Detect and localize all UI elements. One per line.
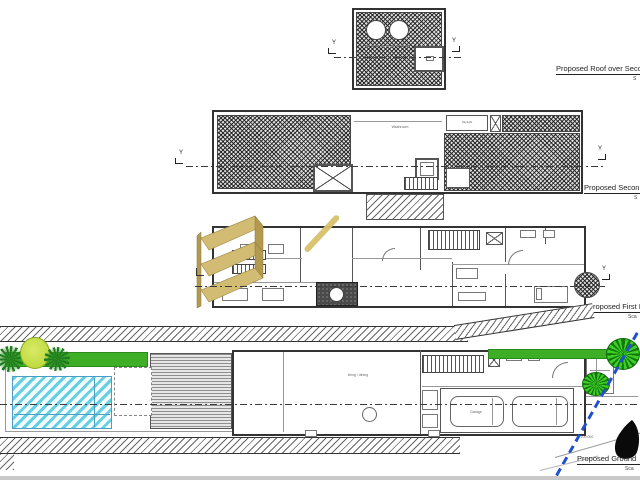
- ground-floor-plan: living / dining Garage: [0, 320, 640, 480]
- first-section-line: [195, 286, 605, 287]
- palm-plant: [44, 347, 70, 371]
- skylight-label: Skylight: [450, 121, 484, 124]
- proposed-extension-dashed: [114, 367, 152, 416]
- section-marker-label: Y: [598, 266, 610, 272]
- wall-segment: [422, 386, 586, 387]
- plan-sheet: Y Y Proposed Roof over Seco S Skylight W…: [0, 0, 640, 480]
- wall-segment: [283, 352, 284, 432]
- party-wall-top: [0, 326, 468, 342]
- second-section-marker-right: Y: [594, 146, 606, 160]
- first-section-marker-right: Y: [598, 266, 610, 280]
- main-room-label: living / dining: [330, 374, 386, 378]
- roof-plan-title: Proposed Roof over Seco: [556, 64, 640, 75]
- second-stair: [404, 177, 438, 190]
- second-section-line: [186, 166, 606, 167]
- pool-lane-line: [14, 414, 110, 415]
- pool-step-line: [94, 378, 95, 427]
- wall-segment: [354, 121, 442, 122]
- timber-deck: [150, 353, 232, 429]
- section-marker-bracket: [452, 46, 460, 52]
- column-base: [428, 430, 440, 437]
- section-marker-bracket: [328, 48, 336, 54]
- column-base: [305, 430, 317, 437]
- table-circle: [362, 407, 377, 422]
- car-windshield: [556, 398, 557, 425]
- first-plan-title: Proposed First F: [588, 302, 640, 313]
- roof-scale-label: S: [633, 76, 636, 82]
- wall-segment: [420, 350, 421, 434]
- party-wall-corner-patch: [0, 454, 14, 470]
- store-room: [422, 390, 438, 410]
- section-marker-label: Y: [175, 150, 187, 156]
- second-roof-hatch-top-strip: [502, 115, 580, 132]
- entrance-step: [590, 370, 610, 371]
- section-marker-label: Y: [594, 146, 606, 152]
- second-stair-bulkhead: [366, 194, 444, 220]
- section-marker-bracket: [598, 154, 606, 160]
- first-stair: [428, 230, 480, 250]
- level-dim-label: 100.000: [575, 436, 599, 440]
- car: [512, 396, 568, 427]
- second-landing-box: [446, 168, 470, 188]
- garage-label: Garage: [460, 411, 492, 415]
- furniture: [458, 292, 486, 301]
- roof-plan: Y Y Proposed Roof over Seco S: [0, 0, 640, 100]
- first-fixture: [520, 230, 536, 238]
- store-room: [422, 414, 438, 428]
- first-fixture: [543, 230, 555, 238]
- gold-louvre-overlay: [193, 208, 289, 312]
- second-vent-xbox: [490, 115, 501, 132]
- section-marker-label: Y: [448, 38, 460, 44]
- first-vent-xbox: [486, 232, 503, 245]
- first-bay-circle: [574, 272, 600, 298]
- roof-note-smudge: [366, 45, 410, 47]
- roof-section-marker-right: Y: [448, 38, 460, 52]
- ground-stair: [422, 355, 484, 373]
- party-wall-bottom: [0, 437, 460, 454]
- wall-segment: [300, 228, 301, 282]
- driveway-edge: [586, 396, 638, 397]
- roof-tank-right: [389, 20, 409, 40]
- ground-section-line: [0, 404, 640, 405]
- first-spa-tub: [329, 287, 344, 302]
- section-marker-label: Y: [328, 40, 340, 46]
- section-marker-bracket: [602, 274, 610, 280]
- second-lift-inner: [420, 162, 434, 176]
- ground-plan-title: Proposed Ground: [577, 454, 640, 465]
- wall-segment: [420, 228, 421, 270]
- roof-tank-left: [366, 20, 386, 40]
- roof-section-marker-left: Y: [328, 40, 340, 54]
- section-marker-bracket: [175, 158, 183, 164]
- first-section-bracket-left: [196, 268, 204, 276]
- sheet-bottom-edge: [0, 476, 640, 480]
- swimming-pool: [12, 376, 112, 429]
- car-windshield: [492, 398, 493, 425]
- first-floor-plan: Y Proposed First F Sca: [0, 225, 640, 320]
- first-bed-pillow: [536, 288, 542, 300]
- second-section-marker-left: Y: [175, 150, 187, 164]
- wall-segment: [505, 228, 506, 262]
- wall-segment: [505, 274, 506, 306]
- wall-segment: [352, 258, 452, 259]
- ground-scale-label: Sca: [625, 466, 634, 472]
- second-plan-title: Proposed Secon: [584, 183, 640, 194]
- second-floor-plan: Skylight Washroom Y Y Proposed Secon S: [0, 100, 640, 225]
- second-scale-label: S: [634, 195, 637, 201]
- second-void-xbox: [313, 164, 353, 192]
- roof-section-line: [334, 57, 462, 58]
- washroom-label: Washroom: [378, 126, 422, 130]
- wall-segment: [452, 262, 453, 306]
- furniture: [456, 268, 478, 279]
